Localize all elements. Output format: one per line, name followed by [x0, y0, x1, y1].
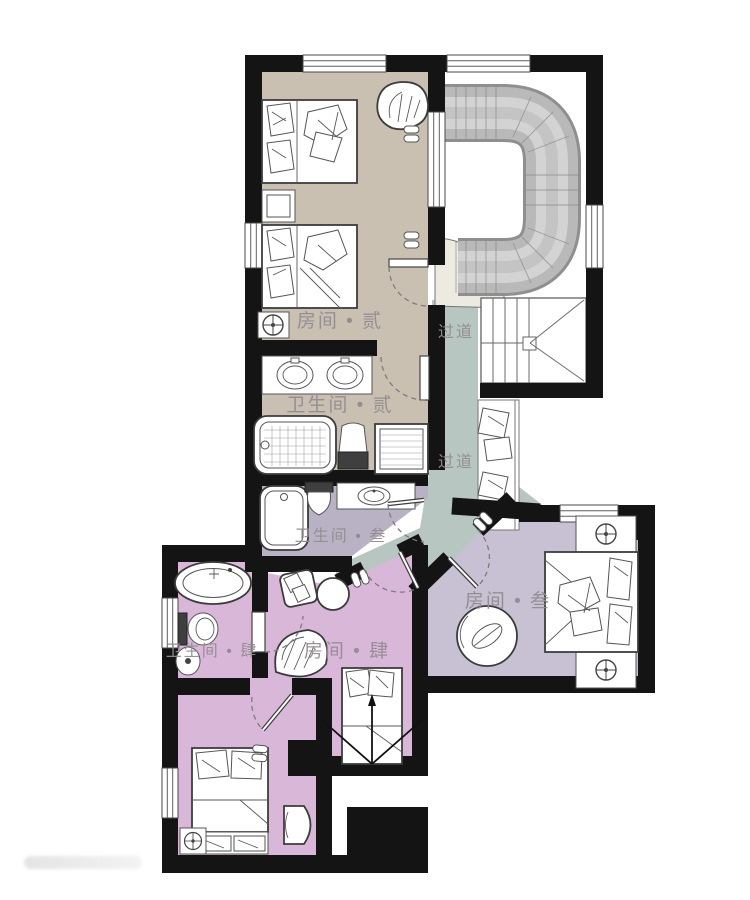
window [428, 112, 445, 207]
round-chair [457, 606, 517, 666]
double-vanity [262, 356, 372, 394]
bath3-label: 卫生间 • 叁 [295, 527, 388, 545]
window [245, 223, 262, 268]
stair-newel [523, 337, 536, 350]
window [447, 55, 530, 72]
corner-table-with-lamp [180, 828, 206, 854]
slide-tube [445, 87, 579, 293]
toilet [178, 613, 218, 645]
lounge-chair [279, 569, 318, 608]
dresser-with-lamp [258, 312, 289, 338]
armchair [284, 806, 311, 844]
diagonal-wall [400, 541, 422, 552]
watermark [24, 856, 142, 869]
corridor-upper-label: 过道 [438, 323, 474, 341]
sink-counter [337, 483, 415, 509]
room4-label: 房间 • 肆 [304, 640, 390, 662]
staircase [481, 298, 586, 383]
window [162, 598, 178, 648]
single-bed [262, 100, 357, 183]
bathtub [254, 416, 336, 474]
floor-plan-page: 房间 • 贰 卫生间 • 贰 过道 过道 卫生间 • 叁 房间 • 叁 卫生间 … [0, 0, 750, 900]
round-stool [317, 578, 349, 610]
double-bed [545, 552, 638, 652]
floor-plan: 房间 • 贰 卫生间 • 贰 过道 过道 卫生间 • 叁 房间 • 叁 卫生间 … [0, 0, 750, 900]
bath2-label: 卫生间 • 贰 [286, 394, 393, 416]
lamp [596, 524, 616, 544]
corridor-lower-label: 过道 [438, 453, 474, 471]
single-bed [262, 225, 357, 308]
window [162, 768, 178, 818]
toilet [338, 423, 368, 469]
window [303, 55, 386, 72]
corner-armchair [377, 82, 428, 129]
room3-label: 房间 • 叁 [465, 590, 551, 612]
bath4-label: 卫生间 • 肆 [166, 642, 259, 660]
bench-pillow [484, 437, 512, 461]
window [586, 205, 603, 268]
room2-label: 房间 • 贰 [297, 310, 383, 332]
shower-unit [375, 424, 428, 474]
faucet [281, 494, 288, 501]
lamp [596, 660, 616, 680]
freestanding-bathtub [175, 562, 251, 604]
bench-pillow [478, 408, 509, 438]
faucet [261, 441, 269, 449]
